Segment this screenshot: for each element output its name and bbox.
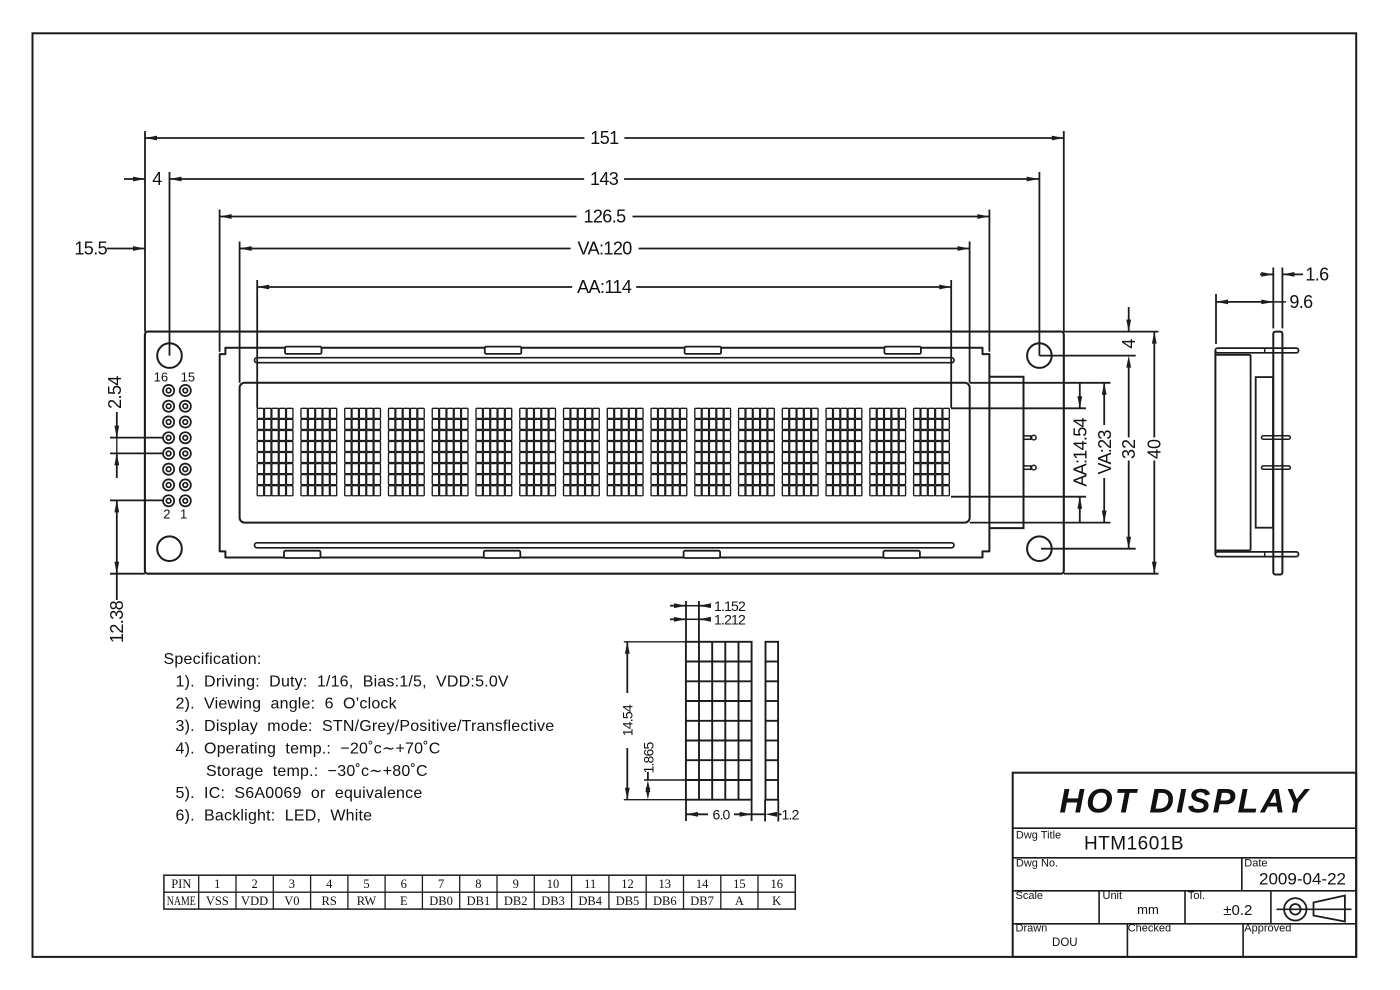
- svg-text:DB0: DB0: [429, 894, 453, 908]
- svg-text:32: 32: [1119, 439, 1139, 459]
- svg-text:6.0: 6.0: [712, 807, 730, 823]
- svg-text:PIN: PIN: [171, 877, 191, 891]
- svg-text:1). Driving: Duty: 1/16, B: 1). Driving: Duty: 1/16, Bias:1/5, VDD:5…: [176, 673, 509, 690]
- svg-text:K: K: [772, 894, 781, 908]
- svg-text:5: 5: [363, 877, 369, 891]
- svg-text:1.212: 1.212: [714, 612, 746, 628]
- svg-text:5). IC: S6A0069 or equival: 5). IC: S6A0069 or equivalence: [176, 785, 423, 802]
- svg-text:VA:23: VA:23: [1095, 430, 1115, 475]
- svg-text:15: 15: [733, 877, 746, 891]
- svg-text:6). Backlight: LED, White: 6). Backlight: LED, White: [176, 808, 373, 825]
- svg-text:4: 4: [152, 169, 162, 189]
- svg-text:1.6: 1.6: [1305, 265, 1329, 285]
- svg-text:A: A: [735, 894, 744, 908]
- svg-text:E: E: [400, 894, 408, 908]
- svg-text:12: 12: [621, 877, 634, 891]
- svg-text:126.5: 126.5: [583, 207, 626, 227]
- svg-text:15: 15: [181, 370, 195, 385]
- svg-text:40: 40: [1145, 439, 1165, 459]
- svg-text:16: 16: [154, 370, 168, 385]
- svg-text:DB7: DB7: [690, 894, 714, 908]
- svg-text:2009-04-22: 2009-04-22: [1259, 870, 1346, 889]
- svg-text:Tol.: Tol.: [1188, 890, 1205, 902]
- svg-text:2). Viewing angle: 6 O’clo: 2). Viewing angle: 6 O’clock: [176, 696, 398, 713]
- svg-text:14: 14: [696, 877, 709, 891]
- svg-text:9: 9: [513, 877, 519, 891]
- svg-text:2: 2: [251, 877, 257, 891]
- svg-text:HTM1601B: HTM1601B: [1084, 834, 1184, 855]
- svg-text:Checked: Checked: [1128, 923, 1171, 935]
- svg-text:1.865: 1.865: [641, 741, 657, 773]
- svg-text:VSS: VSS: [206, 894, 229, 908]
- svg-text:15.5: 15.5: [74, 239, 107, 259]
- svg-text:11: 11: [584, 877, 596, 891]
- svg-text:4). Operating temp.: −20˚c∼: 4). Operating temp.: −20˚c∼+70˚C: [176, 740, 441, 757]
- svg-text:VA:120: VA:120: [578, 239, 633, 259]
- svg-text:12.38: 12.38: [107, 600, 127, 643]
- svg-text:143: 143: [590, 169, 619, 189]
- svg-text:13: 13: [659, 877, 672, 891]
- svg-text:Specification:: Specification:: [164, 651, 262, 668]
- svg-text:4: 4: [326, 877, 333, 891]
- svg-text:2.54: 2.54: [105, 376, 125, 409]
- svg-text:Dwg Title: Dwg Title: [1016, 830, 1061, 842]
- svg-text:RW: RW: [357, 894, 377, 908]
- svg-text:Drawn: Drawn: [1016, 923, 1048, 935]
- svg-text:DB2: DB2: [504, 894, 528, 908]
- svg-text:Date: Date: [1244, 858, 1267, 870]
- svg-text:V0: V0: [284, 894, 299, 908]
- svg-text:9.6: 9.6: [1289, 292, 1313, 312]
- svg-text:151: 151: [590, 128, 619, 148]
- svg-text:DB1: DB1: [467, 894, 491, 908]
- svg-text:3: 3: [289, 877, 295, 891]
- svg-text:HOT DISPLAY: HOT DISPLAY: [1059, 782, 1310, 820]
- svg-text:2: 2: [163, 506, 170, 521]
- svg-text:16: 16: [770, 877, 783, 891]
- svg-text:AA:114: AA:114: [577, 277, 632, 297]
- svg-text:6: 6: [401, 877, 407, 891]
- svg-text:VDD: VDD: [241, 894, 268, 908]
- svg-text:1: 1: [214, 877, 220, 891]
- svg-text:DB6: DB6: [653, 894, 677, 908]
- svg-text:Approved: Approved: [1244, 923, 1291, 935]
- svg-text:RS: RS: [322, 894, 337, 908]
- svg-text:AA:14.54: AA:14.54: [1070, 417, 1090, 486]
- svg-text:Scale: Scale: [1016, 890, 1044, 902]
- svg-text:1.2: 1.2: [782, 807, 800, 823]
- svg-text:DB5: DB5: [616, 894, 640, 908]
- svg-text:4: 4: [1119, 339, 1139, 349]
- svg-text:DOU: DOU: [1052, 937, 1078, 949]
- svg-text:7: 7: [438, 877, 444, 891]
- svg-text:10: 10: [547, 877, 560, 891]
- svg-text:NAME: NAME: [167, 894, 196, 908]
- svg-text:Unit: Unit: [1103, 890, 1123, 902]
- svg-text:DB4: DB4: [578, 894, 602, 908]
- svg-text:mm: mm: [1137, 902, 1159, 917]
- svg-text:±0.2: ±0.2: [1223, 902, 1252, 919]
- svg-text:3). Display mode: STN/Grey/: 3). Display mode: STN/Grey/Positive/Tran…: [176, 718, 555, 735]
- svg-text:14.54: 14.54: [620, 704, 636, 736]
- svg-text:DB3: DB3: [541, 894, 565, 908]
- svg-text:Storage temp.: −30˚c∼+80˚C: Storage temp.: −30˚c∼+80˚C: [206, 763, 428, 780]
- svg-text:Dwg No.: Dwg No.: [1016, 858, 1058, 870]
- svg-text:1: 1: [180, 506, 187, 521]
- svg-text:8: 8: [475, 877, 481, 891]
